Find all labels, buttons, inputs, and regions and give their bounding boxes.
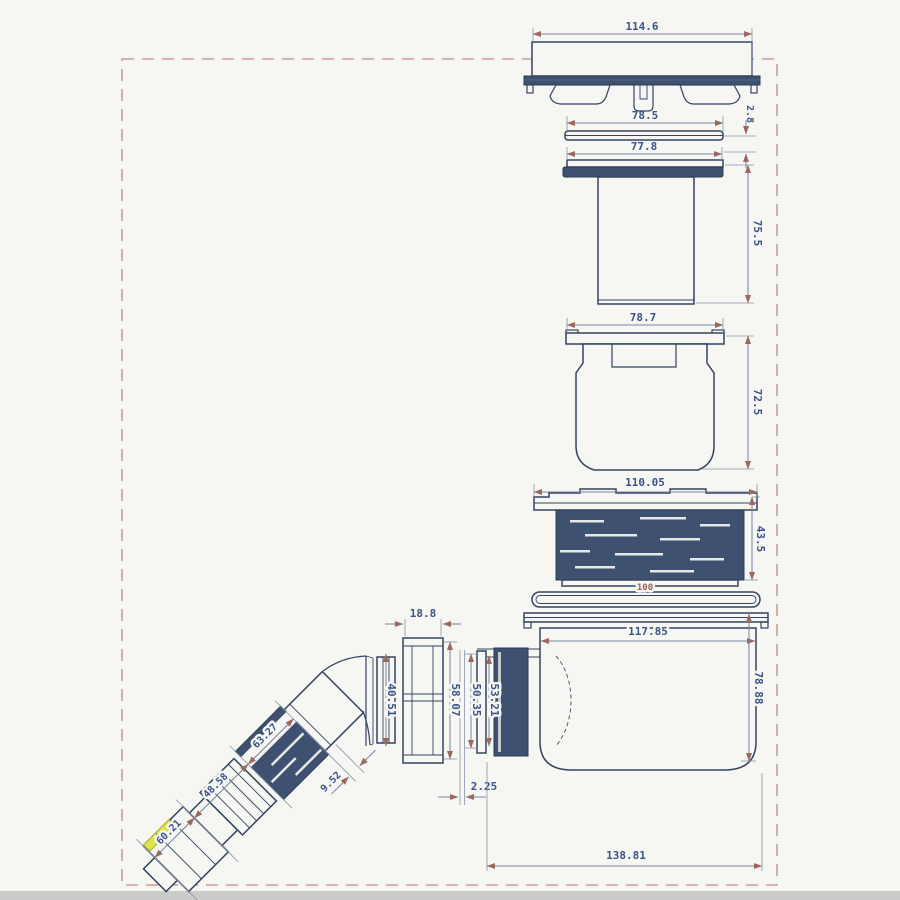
dim-insert-width-label: 78.7 (630, 311, 657, 324)
dim-seal-diameter-label: 100 (637, 583, 653, 593)
dim-nut-inner-height-label: 40.51 (385, 683, 398, 716)
dim-plate-thickness-label: 2.8 (744, 105, 755, 123)
threaded-collar (534, 489, 757, 586)
canvas-background (0, 0, 900, 900)
dim-trap-height-label: 78.88 (752, 671, 765, 704)
dim-seal-thickness-label: 2.25 (471, 780, 498, 793)
rubber-seal (532, 592, 760, 607)
dim-plate-width-label: 78.5 (632, 109, 659, 122)
dim-overall-length-label: 138.81 (606, 849, 646, 862)
dim-trap-inner-width-label: 117.85 (628, 625, 668, 638)
bottom-strip (0, 891, 900, 900)
dim-thread-od-label: 58.07 (449, 683, 462, 716)
dim-washer-od-label: 50.35 (470, 683, 483, 716)
shower-trap-exploded-drawing: 114.6 78.5 2.8 77.8 75.5 (0, 0, 900, 900)
dim-outlet-od-label: 53.21 (488, 683, 501, 716)
dim-insert-height-label: 72.5 (751, 389, 764, 416)
dim-collar-width-label: 110.05 (625, 476, 665, 489)
technical-drawing-page: 114.6 78.5 2.8 77.8 75.5 (0, 0, 900, 900)
sealing-plate (565, 131, 723, 140)
dim-cover-width-label: 114.6 (625, 20, 658, 33)
dim-waste-body-height-label: 75.5 (751, 220, 764, 247)
insert-cup (566, 330, 724, 470)
compression-nut (403, 638, 443, 763)
dim-collar-height-label: 43.5 (754, 526, 767, 553)
dim-flange-width-label: 77.8 (631, 140, 658, 153)
dim-nut-top-width-label: 18.8 (410, 607, 437, 620)
